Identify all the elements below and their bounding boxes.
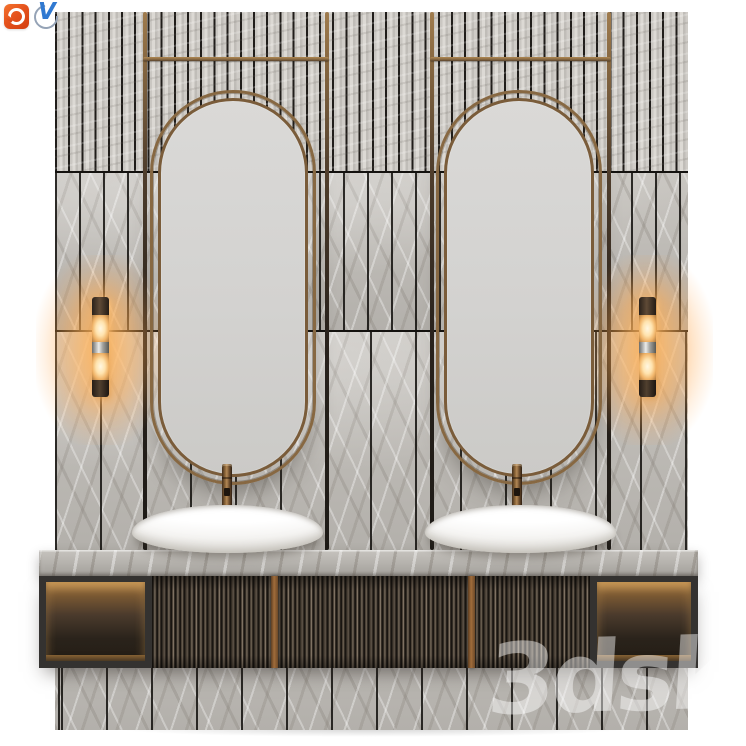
watermark: 3dsky: [485, 624, 746, 730]
brass-rod-vertical: [325, 12, 329, 550]
sconce-chrome-ring: [92, 342, 109, 353]
brass-rod-horizontal: [430, 57, 611, 61]
brass-rod-vertical: [143, 12, 147, 550]
v-ray-icon: V: [33, 2, 61, 30]
render-canvas: V: [0, 0, 746, 746]
faucet-groove: [222, 477, 232, 479]
sconce-lower-bulb: [92, 353, 109, 380]
brass-divider-strip: [468, 576, 475, 668]
faucet-groove: [512, 477, 522, 479]
faucet-outlet: [514, 488, 520, 496]
wall-sconce-right: [639, 297, 656, 397]
brass-rod-vertical: [607, 12, 611, 550]
vessel-sink-right: [425, 505, 616, 553]
sconce-chrome-ring: [639, 342, 656, 353]
faucet-outlet: [224, 488, 230, 496]
brass-rod-horizontal: [143, 57, 329, 61]
vessel-sink-left: [132, 505, 323, 553]
marble-countertop: [39, 550, 698, 576]
mirror-glass: [444, 98, 594, 477]
niche-cavity: [46, 582, 145, 661]
corona-renderer-icon: [4, 4, 29, 29]
oval-mirror-right: [436, 90, 602, 485]
niche-shelf: [46, 655, 145, 661]
sconce-top-stem: [639, 297, 656, 315]
sconce-bottom-stem: [92, 380, 109, 397]
oval-mirror-left: [150, 90, 316, 485]
brass-divider-strip: [271, 576, 278, 668]
wall-sconce-left: [92, 297, 109, 397]
sconce-top-stem: [92, 297, 109, 315]
sconce-bottom-stem: [639, 380, 656, 397]
vray-v-glyph: V: [38, 0, 56, 25]
lit-niche-left: [39, 576, 152, 668]
sconce-lower-bulb: [639, 353, 656, 380]
brass-rod-vertical: [430, 12, 434, 550]
sconce-upper-bulb: [639, 315, 656, 342]
mirror-glass: [158, 98, 308, 477]
sconce-upper-bulb: [92, 315, 109, 342]
